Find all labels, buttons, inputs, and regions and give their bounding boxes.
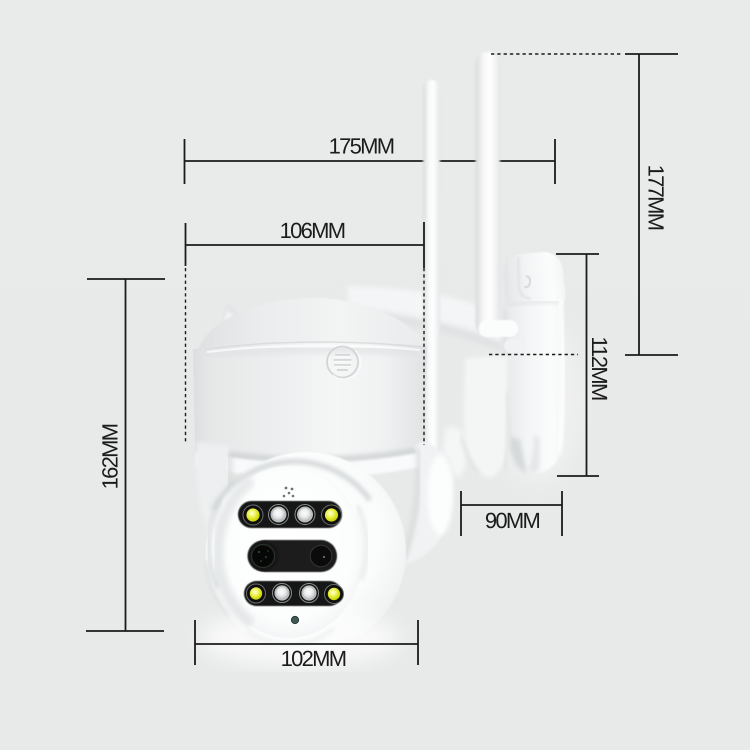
svg-text:102MM: 102MM [281,646,346,671]
svg-text:106MM: 106MM [280,218,345,243]
svg-text:175MM: 175MM [329,134,394,159]
svg-text:177MM: 177MM [644,165,669,230]
svg-text:162MM: 162MM [98,424,123,489]
svg-text:112MM: 112MM [587,336,612,400]
svg-text:90MM: 90MM [485,508,540,533]
